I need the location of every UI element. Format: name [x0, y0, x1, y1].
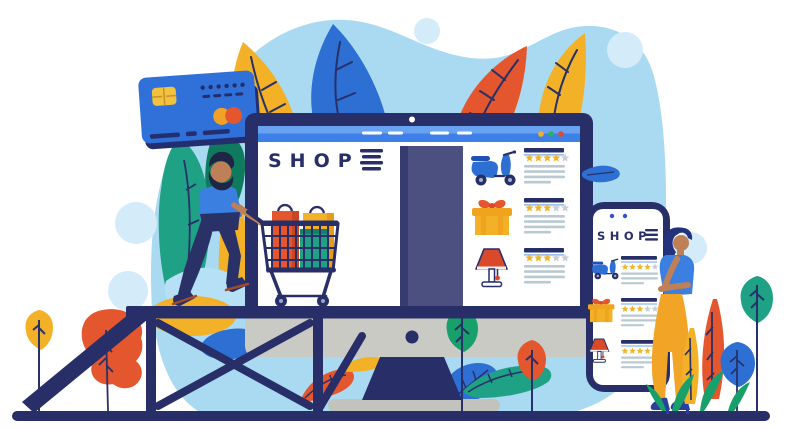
credit-card	[138, 70, 262, 150]
text-line	[524, 231, 551, 234]
text-line	[524, 181, 551, 184]
product-title-underline	[621, 345, 657, 346]
browser-bar	[258, 126, 580, 142]
illustration-canvas: SHOP	[0, 0, 787, 430]
text-line	[621, 366, 644, 368]
text-line	[524, 270, 565, 273]
cart-rim	[261, 221, 339, 227]
decor-circle	[607, 32, 643, 68]
text-line	[621, 319, 658, 321]
text-line	[524, 276, 565, 279]
text-line	[524, 226, 565, 229]
woman-head	[673, 235, 689, 251]
product-title-bar	[621, 340, 657, 344]
text-line	[524, 215, 565, 218]
decor-circle	[414, 18, 440, 44]
text-line	[524, 265, 565, 268]
product-title-underline	[621, 261, 657, 262]
product-title-bar	[524, 148, 564, 153]
window-dot-minimize-icon	[538, 131, 544, 137]
ecommerce-illustration: SHOP	[0, 0, 787, 430]
card-body	[138, 70, 258, 144]
window-dot-maximize-icon	[548, 131, 554, 137]
text-line	[524, 281, 551, 284]
text-line	[621, 273, 658, 275]
product-title-bar	[524, 198, 564, 203]
woman-hand	[674, 256, 680, 262]
bridge-deck-beam	[126, 306, 593, 319]
window-dot-close-icon	[558, 131, 564, 137]
monitor-power-button	[406, 331, 419, 344]
hero-banner-panel	[400, 146, 463, 308]
text-line	[621, 324, 644, 326]
product-title-bar	[621, 298, 657, 302]
product-title-bar	[524, 248, 564, 253]
cart-bottom-rim	[266, 268, 336, 273]
bridge-post	[146, 318, 156, 412]
monitor-base	[328, 399, 500, 412]
woman-crossed-arm	[661, 285, 688, 289]
shop-title: SHOP	[268, 150, 360, 172]
text-line	[524, 165, 565, 168]
phone-hamburger-icon	[645, 229, 658, 241]
text-line	[524, 220, 565, 223]
product-title-underline	[621, 303, 657, 304]
text-line	[524, 170, 565, 173]
text-line	[621, 277, 658, 279]
decor-circle	[108, 271, 148, 311]
webcam-dot-icon	[409, 117, 415, 123]
text-line	[524, 176, 565, 179]
text-line	[621, 282, 644, 284]
text-line	[621, 315, 658, 317]
phone-shop-title: SHOP	[597, 229, 651, 243]
product-title-bar	[621, 256, 657, 260]
decor-circle	[115, 202, 157, 244]
ground-line	[12, 411, 770, 421]
